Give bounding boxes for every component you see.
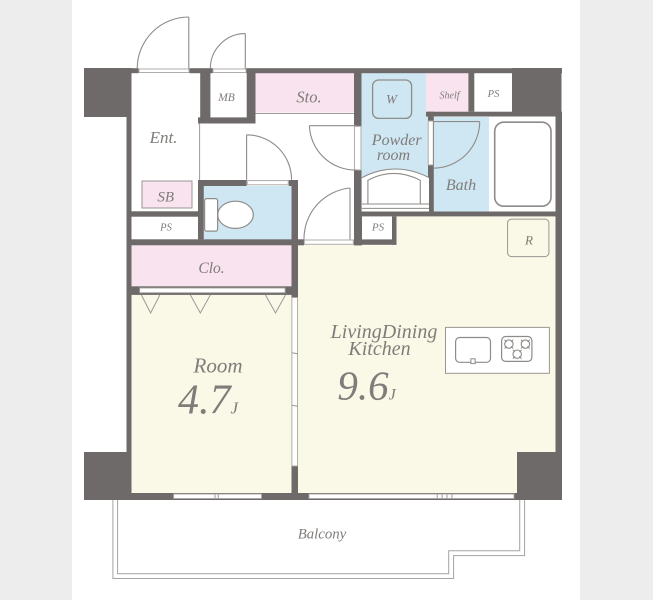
svg-text:W: W xyxy=(386,92,398,107)
svg-text:Clo.: Clo. xyxy=(198,260,224,277)
svg-text:MB: MB xyxy=(217,92,235,104)
svg-text:Balcony: Balcony xyxy=(298,527,347,543)
svg-text:Ent.: Ent. xyxy=(149,128,178,147)
svg-text:Sto.: Sto. xyxy=(296,88,321,107)
svg-text:PS: PS xyxy=(487,89,500,100)
svg-text:Room: Room xyxy=(193,354,243,378)
svg-text:Kitchen: Kitchen xyxy=(347,338,410,360)
svg-text:Shelf: Shelf xyxy=(440,91,461,102)
svg-text:R: R xyxy=(524,232,533,247)
svg-text:PS: PS xyxy=(371,222,385,234)
svg-text:SB: SB xyxy=(157,190,174,206)
svg-text:9.6J: 9.6J xyxy=(337,363,396,409)
svg-text:4.7J: 4.7J xyxy=(178,378,240,424)
svg-text:PS: PS xyxy=(159,223,172,234)
svg-text:room: room xyxy=(377,147,410,164)
svg-text:Bath: Bath xyxy=(446,177,476,194)
